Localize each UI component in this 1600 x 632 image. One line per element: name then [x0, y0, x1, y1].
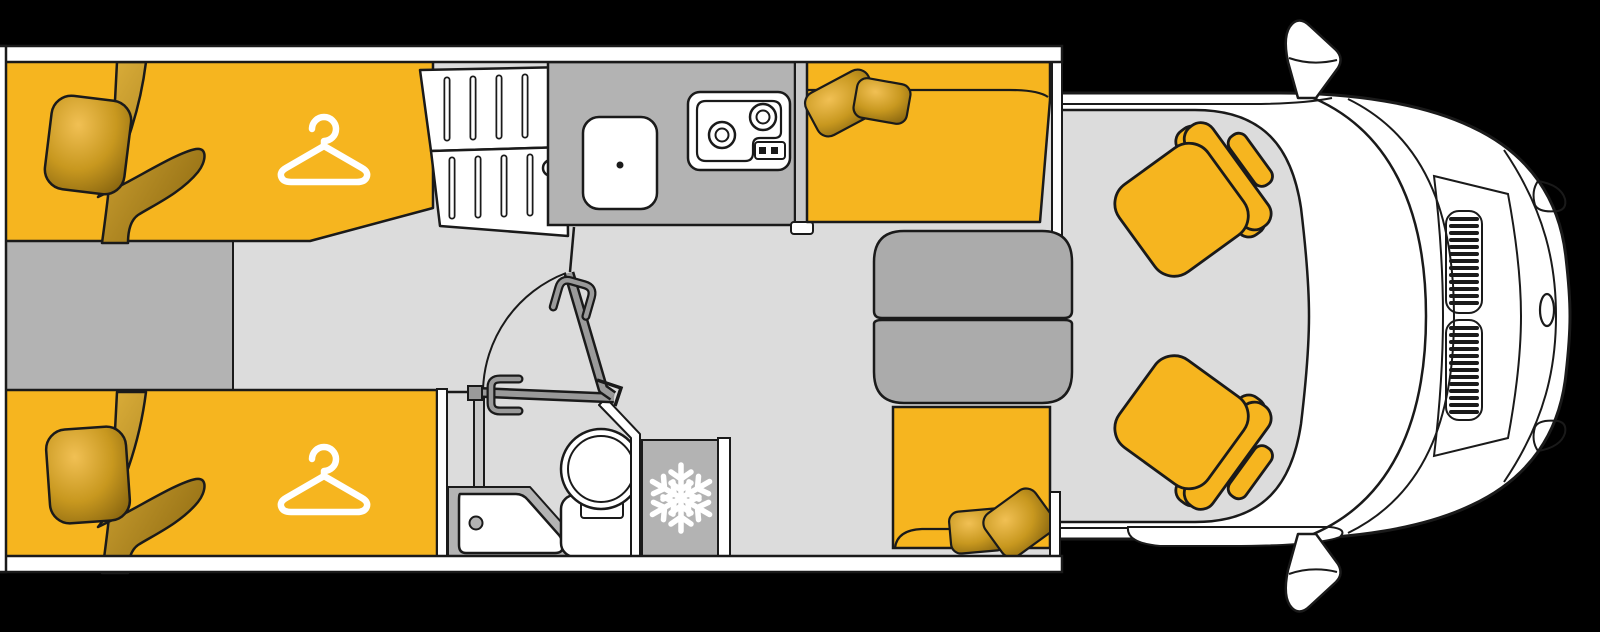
bench-wall-bottom [1050, 492, 1060, 556]
grille-slats [1451, 328, 1477, 412]
door-hinge-block [468, 386, 482, 400]
bathroom-wall-bedside [437, 389, 447, 556]
wall-rear [0, 46, 6, 572]
bench-pillow [852, 77, 912, 126]
toilet-bowl [561, 429, 641, 509]
refrigerator [642, 438, 730, 556]
bed-top [4, 60, 433, 243]
wall-bottom [0, 556, 1062, 572]
hob-knob [771, 147, 778, 154]
table-half-top [874, 231, 1072, 318]
pillow [43, 93, 134, 196]
bench-seat-bottom [893, 407, 1060, 562]
bed-bottom [4, 390, 437, 573]
motorhome-floorplan [0, 0, 1600, 632]
hob-knob [759, 147, 766, 154]
partition-foot [791, 222, 813, 234]
dinette-table [874, 231, 1072, 403]
bench-wall-top [1052, 62, 1062, 235]
hob-two-burner [688, 92, 790, 170]
side-mirror-top [1286, 20, 1341, 98]
floorplan-canvas [0, 0, 1600, 632]
fridge-wall-right [718, 438, 730, 556]
bench-seat-top [801, 62, 1062, 235]
hood-vent-grille-top [1446, 211, 1482, 313]
kitchen-block [548, 62, 813, 234]
sink-drain [617, 162, 624, 169]
table-half-bottom [874, 320, 1072, 403]
hood-vent-grille-bottom [1446, 320, 1482, 420]
wardrobe-cabinet [420, 67, 568, 236]
pillow [45, 425, 131, 524]
shower-drain [470, 517, 483, 530]
grille-slats [1451, 219, 1477, 303]
bedside-step [4, 241, 233, 390]
wall-top [0, 46, 1062, 62]
wardrobe-panel-upper [420, 67, 568, 151]
side-mirror-bottom [1286, 534, 1341, 612]
